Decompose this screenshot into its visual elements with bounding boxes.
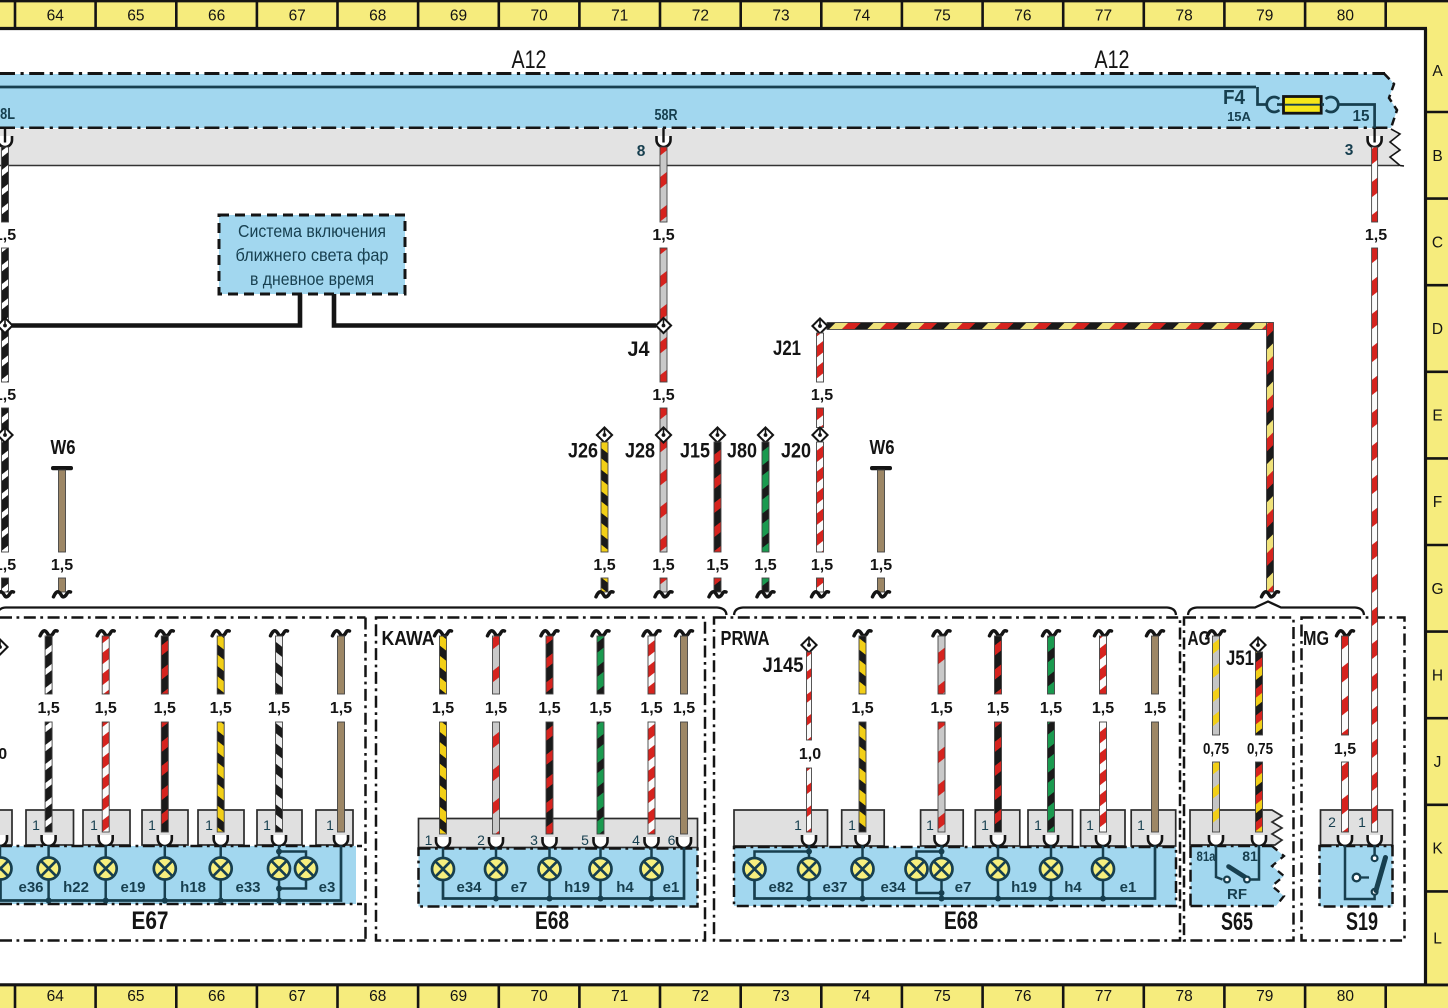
svg-text:A12: A12 xyxy=(1095,46,1130,74)
svg-text:Система включения: Система включения xyxy=(238,221,386,241)
svg-text:1,5: 1,5 xyxy=(811,557,833,574)
svg-text:66: 66 xyxy=(208,988,225,1005)
svg-text:E67: E67 xyxy=(132,907,169,935)
svg-text:1: 1 xyxy=(1086,817,1094,833)
svg-text:h19: h19 xyxy=(564,879,590,896)
svg-text:1,5: 1,5 xyxy=(95,700,117,717)
svg-text:64: 64 xyxy=(47,988,65,1005)
svg-text:K: K xyxy=(1432,841,1443,858)
svg-text:1,5: 1,5 xyxy=(851,700,873,717)
svg-text:e7: e7 xyxy=(511,879,528,896)
svg-text:E68: E68 xyxy=(535,907,569,935)
svg-text:81: 81 xyxy=(1242,848,1258,864)
svg-text:1,5: 1,5 xyxy=(589,700,611,717)
svg-text:h19: h19 xyxy=(1011,879,1037,896)
svg-text:1: 1 xyxy=(981,817,989,833)
svg-text:1,5: 1,5 xyxy=(0,387,16,404)
svg-text:3: 3 xyxy=(530,832,538,848)
svg-text:3: 3 xyxy=(1345,142,1354,159)
svg-text:15A: 15A xyxy=(1227,109,1251,124)
svg-text:1,5: 1,5 xyxy=(930,700,952,717)
svg-text:71: 71 xyxy=(611,8,628,25)
svg-text:73: 73 xyxy=(772,988,789,1005)
svg-text:ближнего света фар: ближнего света фар xyxy=(236,245,389,265)
svg-text:1: 1 xyxy=(848,817,856,833)
svg-text:1,5: 1,5 xyxy=(652,387,674,404)
svg-text:75: 75 xyxy=(934,8,951,25)
svg-text:79: 79 xyxy=(1256,988,1273,1005)
svg-text:e33: e33 xyxy=(235,879,260,896)
svg-text:1,5: 1,5 xyxy=(51,557,73,574)
svg-text:8: 8 xyxy=(637,143,646,160)
svg-text:6: 6 xyxy=(668,832,676,848)
svg-text:75: 75 xyxy=(934,988,951,1005)
svg-text:68: 68 xyxy=(369,988,386,1005)
svg-text:1,5: 1,5 xyxy=(640,700,662,717)
svg-text:1: 1 xyxy=(1034,817,1042,833)
svg-text:1: 1 xyxy=(794,817,802,833)
svg-text:1: 1 xyxy=(326,817,334,833)
svg-text:2: 2 xyxy=(1328,814,1336,830)
svg-text:1,5: 1,5 xyxy=(154,700,176,717)
svg-text:1: 1 xyxy=(1137,817,1145,833)
svg-text:A12: A12 xyxy=(512,46,547,74)
svg-text:71: 71 xyxy=(611,988,628,1005)
svg-text:1,5: 1,5 xyxy=(538,700,560,717)
svg-text:15: 15 xyxy=(1353,108,1370,125)
svg-text:D: D xyxy=(1432,321,1443,338)
svg-text:58R: 58R xyxy=(655,107,678,124)
svg-text:1,5: 1,5 xyxy=(706,557,728,574)
svg-text:A: A xyxy=(1432,63,1443,80)
svg-text:5: 5 xyxy=(581,832,589,848)
svg-text:1,5: 1,5 xyxy=(210,700,232,717)
svg-text:E: E xyxy=(1432,408,1442,425)
svg-text:W6: W6 xyxy=(51,437,76,459)
svg-text:W6: W6 xyxy=(870,437,895,459)
svg-text:e36: e36 xyxy=(18,879,43,896)
svg-text:h18: h18 xyxy=(180,879,206,896)
svg-text:J20: J20 xyxy=(781,440,811,463)
svg-text:J26: J26 xyxy=(568,440,598,463)
svg-text:1,5: 1,5 xyxy=(811,387,833,404)
svg-text:F4: F4 xyxy=(1223,87,1246,109)
svg-text:2: 2 xyxy=(477,832,485,848)
svg-text:1,5: 1,5 xyxy=(485,700,507,717)
svg-text:1,5: 1,5 xyxy=(870,557,892,574)
svg-text:1,5: 1,5 xyxy=(37,700,59,717)
svg-text:1: 1 xyxy=(90,817,98,833)
svg-text:C: C xyxy=(1432,234,1443,251)
svg-text:79: 79 xyxy=(1256,8,1273,25)
svg-text:e3: e3 xyxy=(319,879,336,896)
svg-text:RF: RF xyxy=(1227,886,1247,903)
svg-text:1: 1 xyxy=(263,817,271,833)
svg-text:J: J xyxy=(1434,754,1442,771)
svg-text:65: 65 xyxy=(127,988,144,1005)
svg-text:1,5: 1,5 xyxy=(0,227,16,244)
svg-text:AG: AG xyxy=(1188,628,1211,650)
svg-text:e1: e1 xyxy=(663,879,680,896)
svg-text:J21: J21 xyxy=(773,337,801,360)
svg-text:1,5: 1,5 xyxy=(652,227,674,244)
svg-text:1: 1 xyxy=(32,817,40,833)
svg-text:69: 69 xyxy=(450,988,467,1005)
svg-text:4: 4 xyxy=(632,832,640,848)
svg-text:74: 74 xyxy=(853,8,871,25)
svg-text:1,0: 1,0 xyxy=(0,746,7,763)
svg-text:h4: h4 xyxy=(1064,879,1082,896)
svg-text:L: L xyxy=(1433,931,1442,948)
svg-text:77: 77 xyxy=(1095,988,1112,1005)
svg-text:1,5: 1,5 xyxy=(268,700,290,717)
svg-text:70: 70 xyxy=(530,8,548,25)
svg-text:73: 73 xyxy=(772,8,789,25)
svg-text:65: 65 xyxy=(127,8,144,25)
svg-text:S19: S19 xyxy=(1346,908,1378,936)
svg-text:J4: J4 xyxy=(628,338,650,361)
svg-text:J80: J80 xyxy=(727,440,757,463)
svg-text:1: 1 xyxy=(205,817,213,833)
svg-text:74: 74 xyxy=(853,988,871,1005)
svg-text:72: 72 xyxy=(692,988,709,1005)
svg-text:78: 78 xyxy=(1175,8,1192,25)
svg-text:1,5: 1,5 xyxy=(593,557,615,574)
svg-text:1,5: 1,5 xyxy=(330,700,352,717)
svg-text:72: 72 xyxy=(692,8,709,25)
svg-text:1,5: 1,5 xyxy=(652,557,674,574)
svg-text:h4: h4 xyxy=(616,879,634,896)
svg-text:1,5: 1,5 xyxy=(987,700,1009,717)
svg-text:1,5: 1,5 xyxy=(1334,741,1356,758)
svg-text:80: 80 xyxy=(1337,988,1355,1005)
svg-text:70: 70 xyxy=(530,988,548,1005)
svg-text:B: B xyxy=(1432,148,1442,165)
svg-text:h22: h22 xyxy=(63,879,89,896)
svg-text:66: 66 xyxy=(208,8,225,25)
svg-text:H: H xyxy=(1432,667,1443,684)
svg-text:1,5: 1,5 xyxy=(1040,700,1062,717)
svg-text:1,5: 1,5 xyxy=(673,700,695,717)
svg-text:e82: e82 xyxy=(768,879,793,896)
svg-text:F: F xyxy=(1433,494,1442,511)
svg-text:1,5: 1,5 xyxy=(1092,700,1114,717)
svg-text:69: 69 xyxy=(450,8,467,25)
svg-text:S65: S65 xyxy=(1221,908,1253,936)
svg-text:1: 1 xyxy=(926,817,934,833)
svg-text:1: 1 xyxy=(425,832,433,848)
svg-text:e7: e7 xyxy=(955,879,972,896)
svg-text:J15: J15 xyxy=(680,440,710,463)
svg-text:68: 68 xyxy=(369,8,386,25)
svg-text:81a: 81a xyxy=(1197,848,1216,864)
svg-text:1,0: 1,0 xyxy=(799,746,821,763)
svg-text:1,5: 1,5 xyxy=(0,557,16,574)
svg-text:в дневное время: в дневное время xyxy=(250,269,374,289)
svg-text:1,5: 1,5 xyxy=(432,700,454,717)
svg-text:J145: J145 xyxy=(763,654,804,677)
svg-text:67: 67 xyxy=(289,988,306,1005)
svg-text:MG: MG xyxy=(1303,628,1329,650)
svg-text:64: 64 xyxy=(47,8,65,25)
svg-text:0,75: 0,75 xyxy=(1247,741,1273,758)
svg-text:KAWA: KAWA xyxy=(382,628,435,650)
svg-text:1: 1 xyxy=(1358,814,1366,830)
svg-text:1,5: 1,5 xyxy=(1365,227,1387,244)
svg-text:78: 78 xyxy=(1175,988,1192,1005)
svg-text:76: 76 xyxy=(1014,988,1031,1005)
svg-text:76: 76 xyxy=(1014,8,1031,25)
svg-text:J28: J28 xyxy=(625,440,655,463)
svg-text:e34: e34 xyxy=(456,879,482,896)
svg-text:80: 80 xyxy=(1337,8,1355,25)
svg-text:0,75: 0,75 xyxy=(1203,741,1229,758)
svg-text:67: 67 xyxy=(289,8,306,25)
svg-text:e1: e1 xyxy=(1120,879,1137,896)
svg-text:58L: 58L xyxy=(0,106,15,123)
svg-text:1,5: 1,5 xyxy=(1144,700,1166,717)
svg-text:1: 1 xyxy=(148,817,156,833)
svg-text:J51: J51 xyxy=(1226,647,1254,670)
svg-text:PRWA: PRWA xyxy=(721,628,770,650)
svg-text:e19: e19 xyxy=(120,879,145,896)
svg-text:e34: e34 xyxy=(880,879,906,896)
svg-text:1,5: 1,5 xyxy=(754,557,776,574)
svg-text:77: 77 xyxy=(1095,8,1112,25)
svg-text:e37: e37 xyxy=(822,879,847,896)
svg-text:E68: E68 xyxy=(944,907,978,935)
svg-text:G: G xyxy=(1431,581,1443,598)
